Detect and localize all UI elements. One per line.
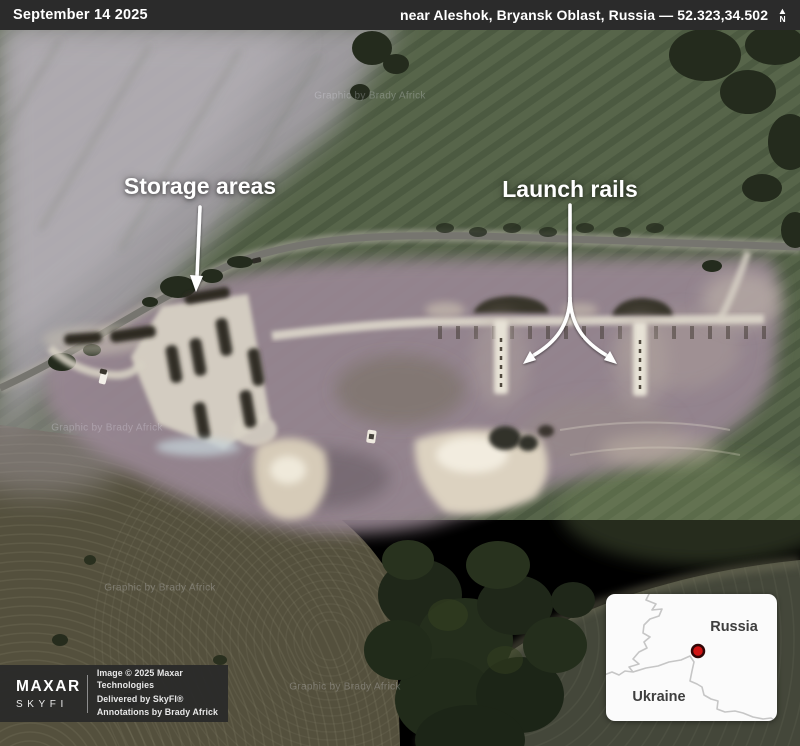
capture-date: September 14 2025	[13, 7, 148, 23]
location-marker-dot	[692, 645, 704, 657]
credit-line-annotations: Annotations by Brady Africk	[97, 707, 220, 719]
vehicle-speck	[366, 430, 377, 444]
credit-divider	[87, 675, 88, 713]
credit-line-delivered: Delivered by SkyFI®	[97, 694, 220, 706]
watermark: Graphic by Brady Africk	[51, 423, 162, 434]
storage-areas-label: Storage areas	[124, 173, 276, 200]
launch-rails-label: Launch rails	[502, 176, 637, 203]
inset-label-ukraine: Ukraine	[632, 689, 685, 705]
credit-bar: MAXAR SKYFI Image © 2025 Maxar Technolog…	[0, 665, 228, 722]
annotated-satellite-graphic: Storage areas Launch rails Graphic by Br…	[0, 0, 800, 746]
watermark: Graphic by Brady Africk	[314, 91, 425, 102]
skyfi-logo: SKYFI	[16, 699, 68, 710]
maxar-logo: MAXAR	[16, 678, 81, 696]
north-triangle-icon: ▲	[778, 7, 788, 16]
maxar-skyfi-logo: MAXAR SKYFI	[16, 678, 81, 710]
top-info-bar: September 14 2025 near Aleshok, Bryansk …	[0, 0, 800, 30]
north-arrow-icon: ▲ N	[778, 7, 787, 24]
north-letter: N	[779, 15, 785, 24]
watermark: Graphic by Brady Africk	[289, 682, 400, 693]
inset-locator-map: Russia Ukraine	[606, 594, 777, 721]
inset-label-russia: Russia	[710, 619, 758, 635]
location-coordinates: near Aleshok, Bryansk Oblast, Russia — 5…	[400, 7, 768, 23]
credit-line-image: Image © 2025 Maxar Technologies	[97, 668, 220, 692]
watermark: Graphic by Brady Africk	[104, 583, 215, 594]
border-line-west	[606, 594, 662, 675]
